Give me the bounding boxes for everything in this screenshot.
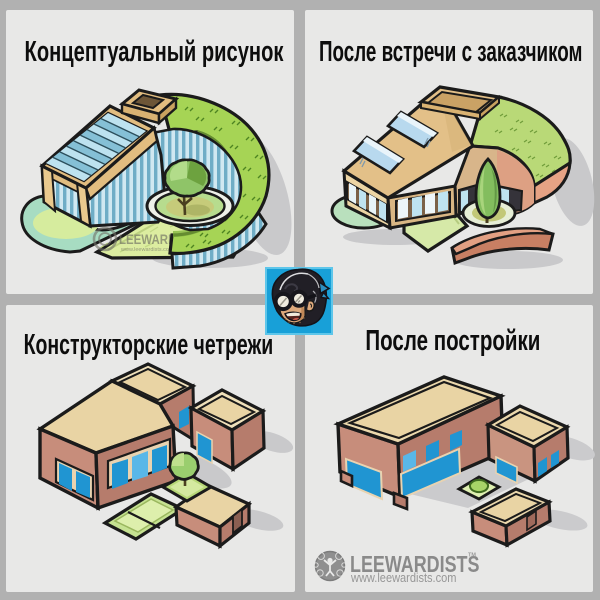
svg-text:После встречи с заказчиком: После встречи с заказчиком — [319, 36, 582, 68]
svg-text:Конструкторские четрежи: Конструкторские четрежи — [24, 329, 274, 361]
svg-text:www.leewardists.com: www.leewardists.com — [120, 247, 174, 253]
svg-text:После постройки: После постройки — [365, 325, 540, 357]
svg-text:TM: TM — [468, 553, 476, 559]
svg-text:Концептуальный рисунок: Концептуальный рисунок — [25, 35, 284, 68]
svg-text:www.leewardists.com: www.leewardists.com — [350, 570, 456, 585]
